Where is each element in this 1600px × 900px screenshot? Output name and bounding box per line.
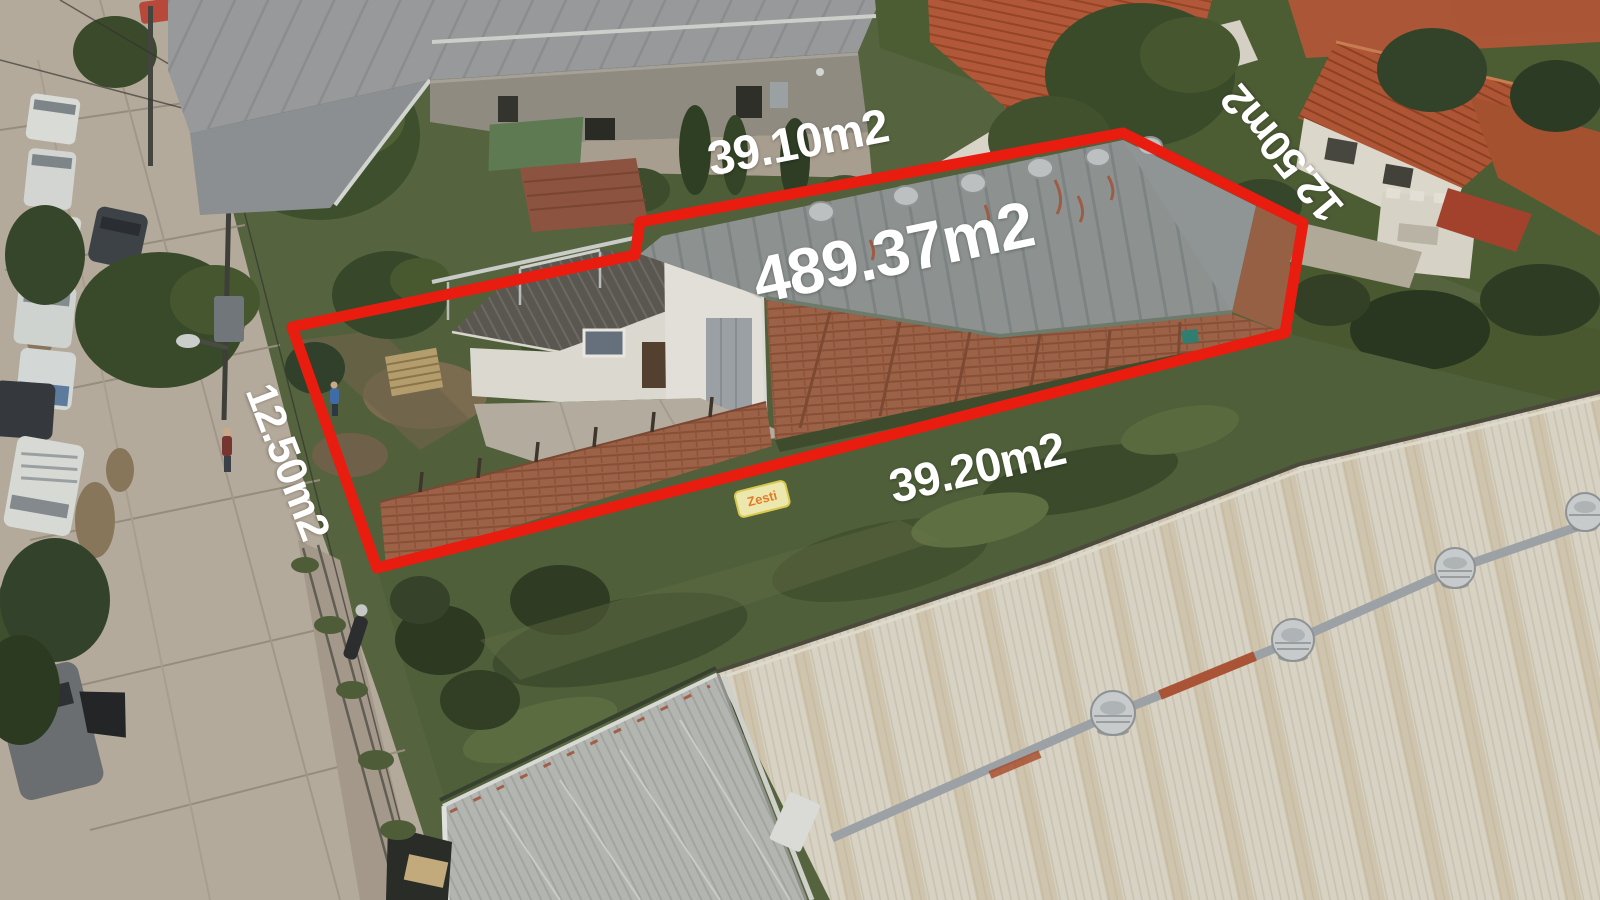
street-lamp xyxy=(176,334,200,348)
aerial-photo-canvas: Zesti xyxy=(0,0,1600,900)
pole-top xyxy=(148,6,153,166)
turbine-vent xyxy=(1272,619,1314,662)
white-car xyxy=(25,93,81,146)
house-door xyxy=(642,342,668,388)
house-window xyxy=(584,330,624,356)
teal-barrel xyxy=(1181,329,1199,344)
white-van xyxy=(23,148,77,211)
turbine-vent xyxy=(1091,691,1135,736)
turbine-vent xyxy=(1566,493,1600,532)
turbine-vent xyxy=(1435,548,1475,589)
transformer-box xyxy=(214,296,244,342)
dark-suv xyxy=(0,380,56,440)
